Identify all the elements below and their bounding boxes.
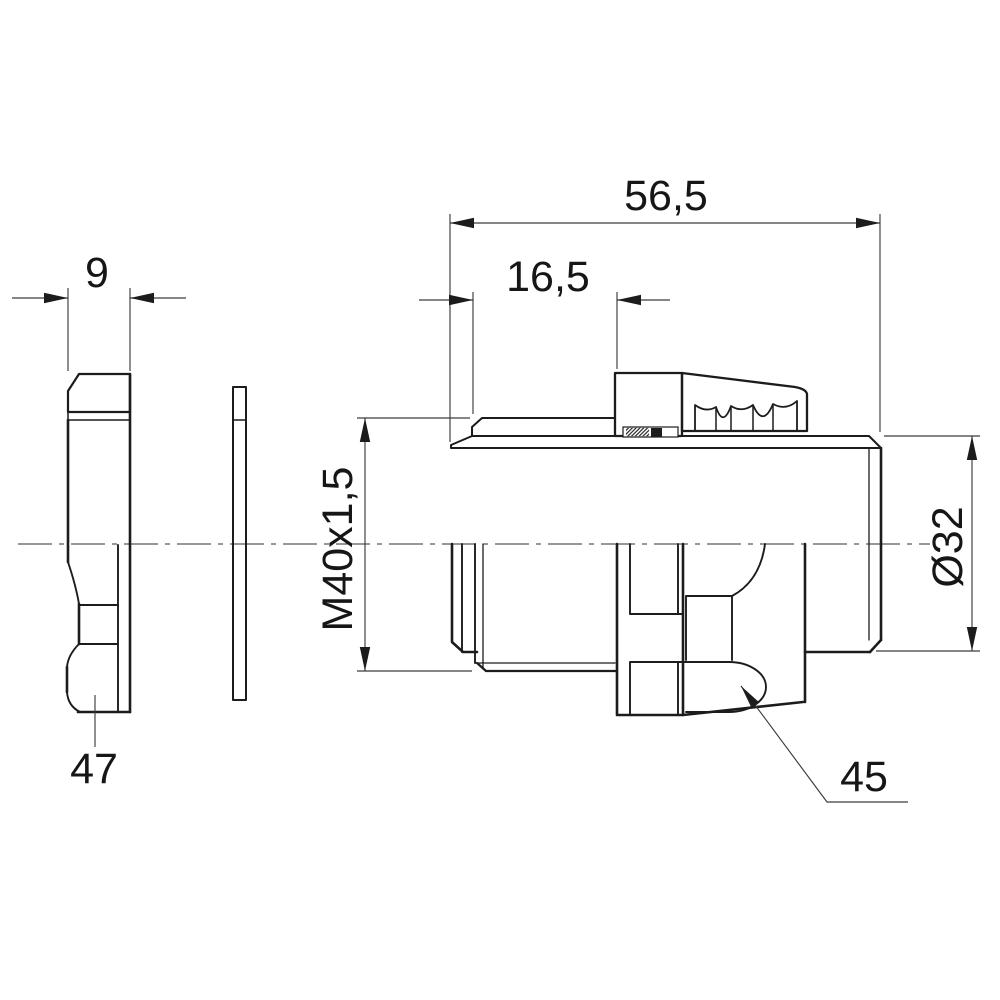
thread-root-line [490,429,622,435]
dim-nut-width: 9 [12,249,186,371]
bore-shoulder-arc [732,544,765,596]
extension-lines [450,214,880,442]
technical-drawing-canvas: 9 56,5 16,5 M40x1,5 Ø32 47 [0,0,1000,1000]
drawing-page: 9 56,5 16,5 M40x1,5 Ø32 47 [0,0,1000,1000]
ref-label-locknut: 47 [70,745,118,793]
locknut-facet-lines [79,605,118,644]
cap-skirt-lower [683,702,803,715]
dim-label-thread-length: 16,5 [506,253,590,301]
arrowhead [617,295,641,305]
extension-lines [68,288,130,371]
arrowhead [360,418,370,442]
arrowhead [44,293,68,303]
dim-label-total-length: 56,5 [624,172,708,220]
locknut-washer-face-hatch [68,412,130,420]
locknut-facet-curve [68,562,79,604]
insert-edges [686,596,732,660]
cap-section [682,373,807,431]
arrowhead [450,218,474,228]
dim-label-nut-width: 9 [85,249,109,297]
extension-lines [473,292,617,414]
locknut-corner-arc [67,692,80,712]
arrowhead [967,436,977,460]
arrowhead [449,295,473,305]
arrowhead [360,647,370,671]
arrowhead [130,293,154,303]
hex-lower-outline [617,544,683,715]
body-left-lower-edge [452,544,477,652]
dim-total-length: 56,5 [450,172,880,442]
ref-label-seal: 45 [840,753,888,801]
arrowhead [741,686,759,708]
dim-thread-length: 16,5 [419,253,670,414]
nipple-bottom-chamfer [870,640,881,652]
ref-seal: 45 [741,686,908,802]
dim-label-outlet-diameter: Ø32 [924,506,972,587]
cap-finger-slots [695,401,797,431]
locknut-side-view [67,374,130,712]
locknut-section-hatch [68,374,130,412]
arrowhead [967,627,977,651]
locknut-facet-curve [67,644,79,667]
washer-section-hatch [233,387,246,420]
oring-seal [651,428,662,437]
hex-facet-lines-lower [630,544,730,715]
dim-label-thread-spec: M40x1,5 [314,467,362,632]
body-wall-section [451,436,881,448]
thread-crest-lower [477,663,617,671]
oring-groove-hatch [626,428,649,436]
arrowhead [856,218,880,228]
